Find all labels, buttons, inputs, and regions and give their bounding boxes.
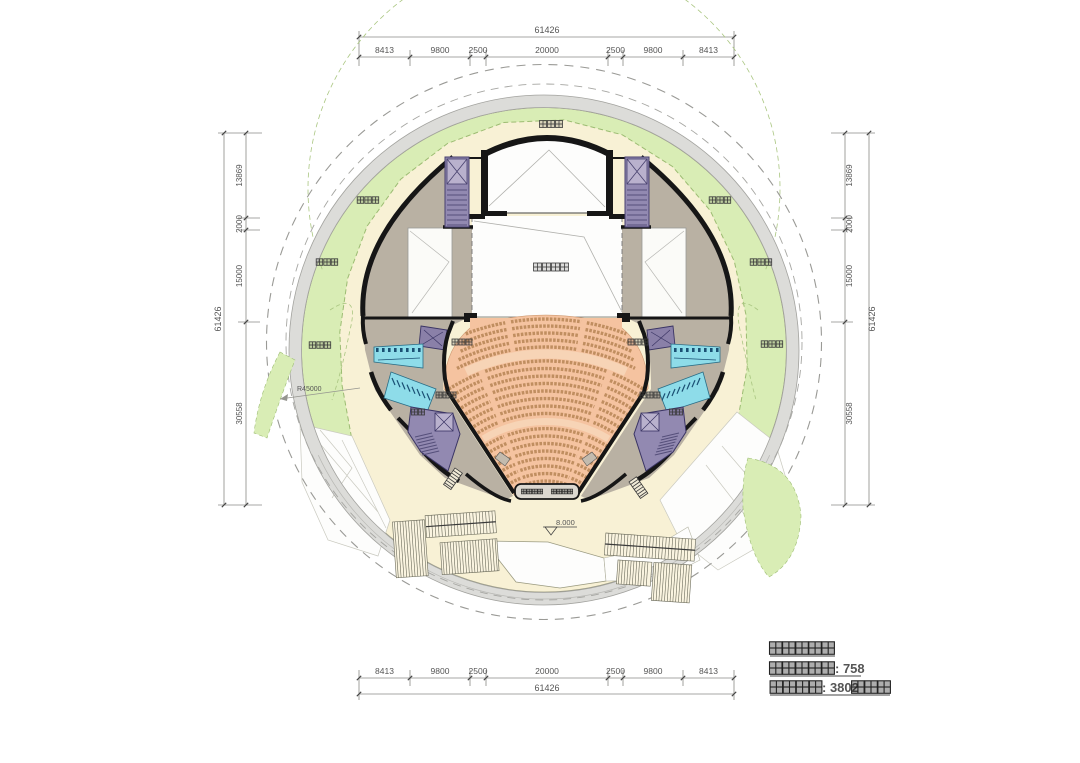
svg-text:20000: 20000 (535, 45, 559, 55)
svg-text:13869: 13869 (845, 164, 854, 187)
svg-text:2000: 2000 (845, 215, 854, 233)
svg-text:61426: 61426 (534, 683, 559, 693)
svg-text:8413: 8413 (375, 666, 394, 676)
svg-text:2500: 2500 (469, 666, 488, 676)
svg-text:8.000: 8.000 (556, 518, 575, 527)
svg-text:8413: 8413 (699, 45, 718, 55)
svg-text:9800: 9800 (644, 666, 663, 676)
svg-text:: 758: : 758 (835, 661, 865, 676)
svg-text:9800: 9800 (431, 666, 450, 676)
svg-text:30558: 30558 (235, 402, 244, 425)
svg-text:20000: 20000 (535, 666, 559, 676)
svg-text:61426: 61426 (867, 306, 877, 331)
svg-text:2500: 2500 (606, 666, 625, 676)
svg-text:13869: 13869 (235, 164, 244, 187)
svg-text:61426: 61426 (213, 306, 223, 331)
svg-text:9800: 9800 (431, 45, 450, 55)
svg-text:30558: 30558 (845, 402, 854, 425)
svg-text:9800: 9800 (644, 45, 663, 55)
svg-text:R45000: R45000 (297, 386, 322, 393)
svg-text:2500: 2500 (469, 45, 488, 55)
svg-text:15000: 15000 (235, 264, 244, 287)
svg-text:8413: 8413 (375, 45, 394, 55)
svg-text:2000: 2000 (235, 215, 244, 233)
svg-text:15000: 15000 (845, 264, 854, 287)
svg-text:61426: 61426 (534, 25, 559, 35)
svg-text:8413: 8413 (699, 666, 718, 676)
svg-text:2500: 2500 (606, 45, 625, 55)
